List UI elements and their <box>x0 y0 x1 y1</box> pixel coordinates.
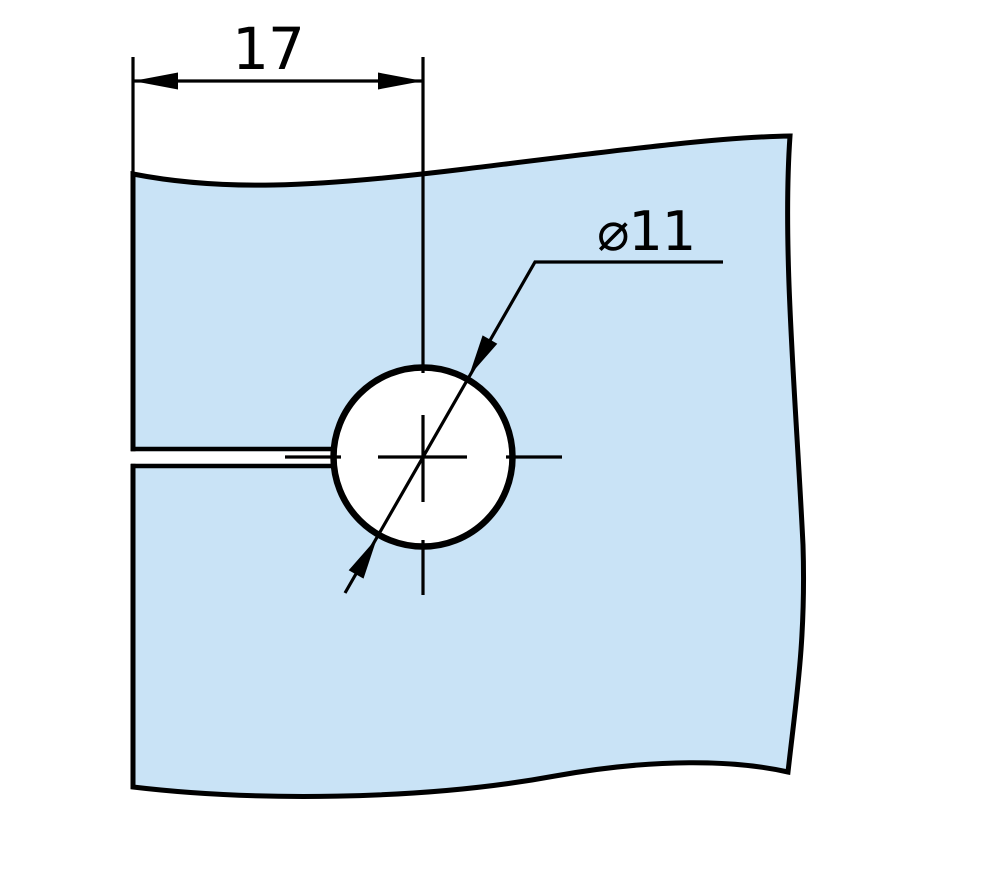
technical-drawing: 17 ⌀11 <box>0 0 988 887</box>
diameter-dimension-label: ⌀11 <box>597 200 695 263</box>
drawing-canvas: 17 ⌀11 <box>0 0 988 887</box>
dim-arrow-right <box>378 73 423 90</box>
dim-arrow-left <box>133 73 178 90</box>
width-dimension-label: 17 <box>232 15 304 83</box>
